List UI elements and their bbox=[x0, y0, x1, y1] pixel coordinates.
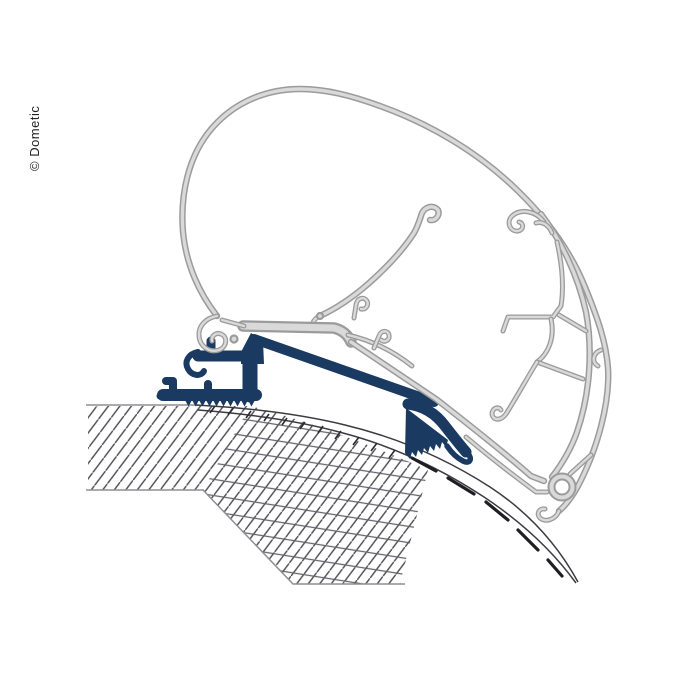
fabric-guide-ball-knob bbox=[317, 313, 323, 319]
adapter-cross-section-drawing bbox=[0, 0, 700, 700]
front-wall-cross-hatch bbox=[203, 406, 428, 584]
case-floor-rail bbox=[243, 298, 412, 366]
adapter-strut bbox=[254, 339, 434, 402]
drawing-canvas: © Dometic bbox=[0, 0, 700, 700]
vehicle-body-section bbox=[86, 405, 428, 584]
fabric-guide-wall bbox=[313, 207, 439, 330]
hook-ball-knob bbox=[231, 336, 238, 343]
